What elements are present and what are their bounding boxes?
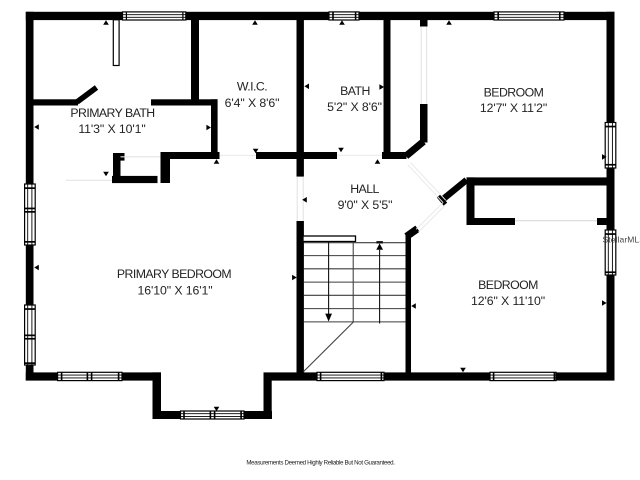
svg-text:6'4" X 8'6": 6'4" X 8'6" — [225, 96, 280, 110]
svg-text:12'6" X 11'10": 12'6" X 11'10" — [471, 294, 545, 308]
svg-text:PRIMARY BEDROOM: PRIMARY BEDROOM — [117, 267, 232, 281]
svg-text:16'10" X 16'1": 16'10" X 16'1" — [138, 284, 213, 298]
svg-text:BEDROOM: BEDROOM — [484, 86, 544, 100]
svg-text:11'3" X 10'1": 11'3" X 10'1" — [78, 122, 145, 136]
svg-text:5'2" X 8'6": 5'2" X 8'6" — [327, 100, 382, 114]
svg-text:StellarMLS: StellarMLS — [603, 235, 640, 245]
svg-text:BATH: BATH — [340, 84, 370, 98]
svg-text:PRIMARY BATH: PRIMARY BATH — [70, 106, 154, 120]
svg-text:9'0" X 5'5": 9'0" X 5'5" — [338, 198, 393, 212]
svg-text:BEDROOM: BEDROOM — [478, 278, 538, 292]
svg-text:12'7" X 11'2": 12'7" X 11'2" — [480, 101, 547, 115]
svg-text:W.I.C.: W.I.C. — [237, 80, 267, 94]
svg-text:HALL: HALL — [350, 182, 379, 196]
svg-text:Measurements Deemed Highly Rel: Measurements Deemed Highly Reliable But … — [246, 459, 395, 466]
